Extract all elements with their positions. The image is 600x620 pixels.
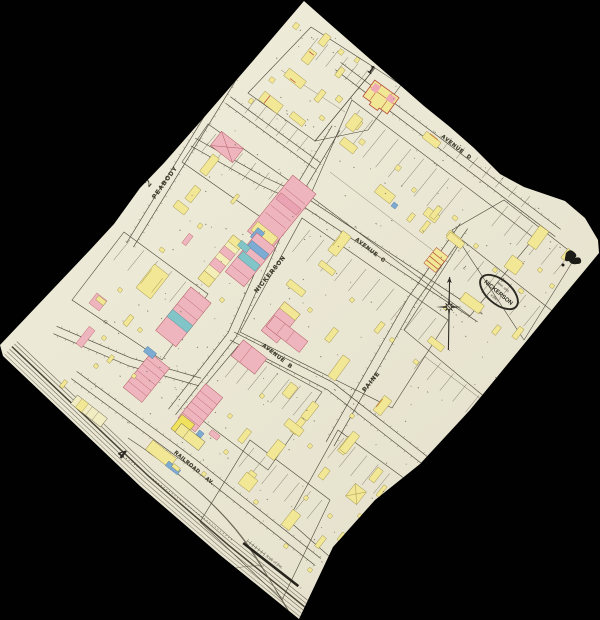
svg-text:N: N xyxy=(447,306,451,311)
